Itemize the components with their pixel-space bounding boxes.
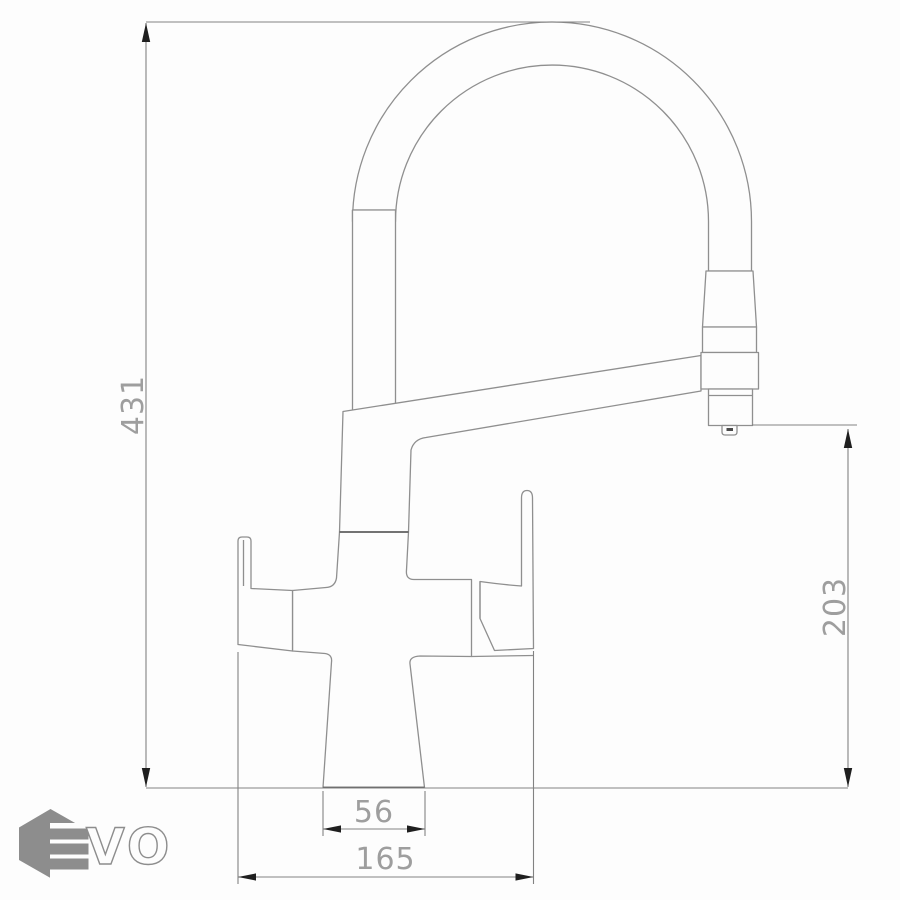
arrowhead-56-left: [323, 825, 341, 832]
arrowhead-165-left: [238, 873, 256, 880]
logo-letters-vo: VO: [86, 818, 172, 876]
dimension-label-203: 203: [818, 577, 853, 637]
right-handle-base-edge: [472, 656, 534, 657]
right-handle: [480, 491, 534, 651]
spray-head-lower-housing: [709, 389, 753, 426]
left-handle: [238, 537, 293, 651]
arrowhead-165-right: [516, 873, 534, 880]
spray-nozzle-outlet: [727, 428, 734, 431]
dimension-label-56: 56: [354, 795, 394, 830]
logo-letter-e-bar-top: [53, 829, 89, 840]
arrowhead-431-top: [142, 23, 150, 42]
faucet-outline: [238, 22, 759, 788]
arrowhead-203-top: [844, 429, 852, 448]
logo-letter-e-bar-bottom: [53, 859, 89, 870]
spray-head-taper: [703, 271, 757, 327]
gooseneck-hose: [353, 22, 752, 271]
faucet-body: [293, 356, 702, 788]
spout-riser-pipe: [353, 210, 396, 412]
arrowhead-203-bottom: [844, 768, 852, 787]
evo-logo: VO: [19, 809, 172, 879]
dimension-label-431: 431: [116, 375, 151, 435]
spray-head-body: [701, 353, 759, 390]
spray-head-collar: [703, 327, 757, 353]
dimension-annotations: 431 203 56 165: [116, 22, 857, 884]
faucet-technical-drawing: 431 203 56 165 VO: [0, 0, 900, 900]
arrowhead-56-right: [407, 825, 425, 832]
drawing-canvas: 431 203 56 165 VO: [0, 0, 900, 900]
dimension-label-165: 165: [355, 842, 415, 877]
logo-letter-e-bar-mid: [53, 844, 89, 855]
arrowhead-431-bottom: [142, 768, 150, 787]
